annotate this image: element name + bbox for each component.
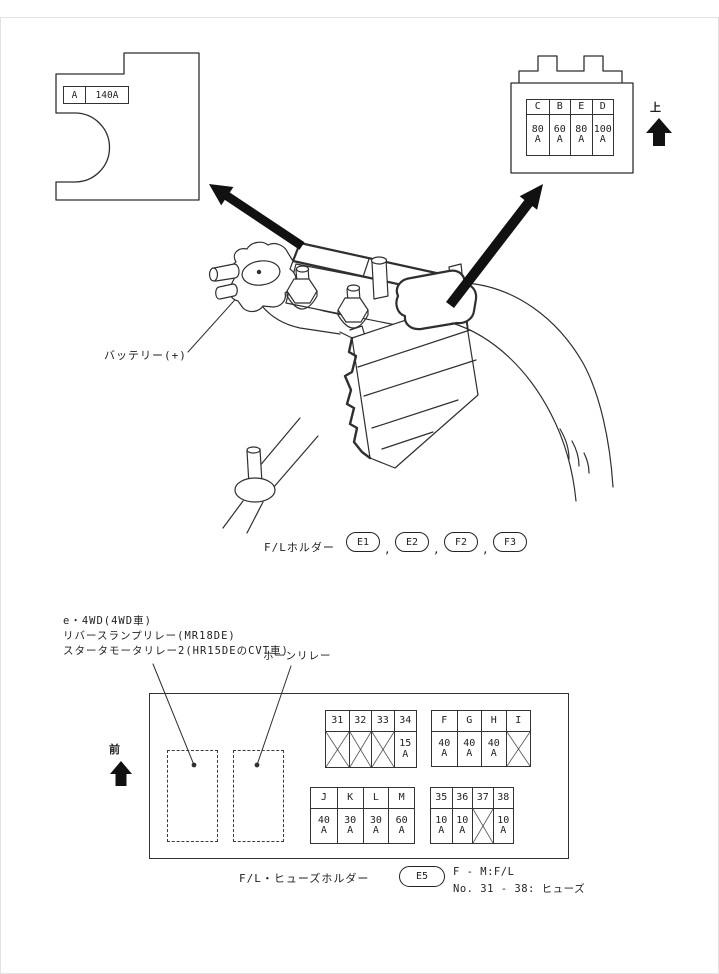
fuse-slot-header: K xyxy=(337,788,363,808)
cable-outer-edge xyxy=(466,283,613,487)
terminal-center-dot xyxy=(257,270,260,273)
fuse-slot-header: 38 xyxy=(493,788,514,808)
up-direction-label: 上 xyxy=(650,99,661,115)
fl-slot-amp: 60 A xyxy=(549,114,571,155)
fuse-slot-blocked xyxy=(506,731,531,766)
fuse-slot-amp: 40 A xyxy=(311,808,337,843)
fuse-slot-header: F xyxy=(432,711,457,731)
fl-table-j-m: J K L M 40 A 30 A 30 A 60 A xyxy=(310,787,415,844)
fuse-slot-amp: 30 A xyxy=(363,808,389,843)
battery-label: バッテリー(+) xyxy=(104,347,187,363)
fuse-slot-amp: 10 A xyxy=(452,808,473,843)
fuse-slot-amp: 15 A xyxy=(394,731,417,767)
ref-separator: , xyxy=(482,543,489,556)
fuse-slot-header: L xyxy=(363,788,389,808)
fuse-slot-blocked xyxy=(472,808,493,843)
fuse-slot-header: M xyxy=(388,788,414,808)
connector-ref-f3: F3 xyxy=(493,532,527,552)
note-fl-range: F - M:F/L xyxy=(453,866,514,878)
arrow-to-topleft-view xyxy=(209,184,305,250)
nut1-stud-top xyxy=(297,266,309,272)
up-direction-arrow xyxy=(646,118,672,146)
fuse-slot-header: 34 xyxy=(394,711,417,731)
nut2-stud-top xyxy=(348,285,360,291)
fuse-slot-header: 31 xyxy=(326,711,349,731)
relay-callout-line1: e・4WD(4WD車) xyxy=(63,613,152,628)
connector-ref-e2: E2 xyxy=(395,532,429,552)
fuse-slot-amp: 40 A xyxy=(481,731,506,766)
fuse-slot-amp: 60 A xyxy=(388,808,414,843)
fl-slot-header: E xyxy=(570,100,592,114)
fuse-slot-header: J xyxy=(311,788,337,808)
fuse-slot-header: 35 xyxy=(431,788,452,808)
fuse-slot-amp: 30 A xyxy=(337,808,363,843)
cable-hatch-marks xyxy=(560,429,589,473)
fuse-slot-header: 33 xyxy=(371,711,394,731)
fl-table-f-i: F G H I 40 A 40 A 40 A xyxy=(431,710,531,767)
fl-slot-header: D xyxy=(592,100,614,114)
fl-holder-detail-outline xyxy=(56,53,199,200)
bolt-tail-lines xyxy=(223,501,263,533)
connector-ref-e1: E1 xyxy=(346,532,380,552)
fl-slot-amp: 80 A xyxy=(527,114,549,155)
connector-ref-e5: E5 xyxy=(399,866,445,887)
fuse-slot-header: H xyxy=(481,711,506,731)
ref-separator: , xyxy=(384,543,391,556)
fuse-slot-amp: 10 A xyxy=(431,808,452,843)
fl-table-cbed: C B E D 80 A 60 A 80 A 100 A xyxy=(526,99,614,156)
fuse-slot-amp: 10 A xyxy=(493,808,514,843)
fuse-slot-header: 36 xyxy=(452,788,473,808)
relay-callout-line2: リバースランプリレー(MR18DE) xyxy=(63,628,236,643)
fl-table-a: A 140A xyxy=(63,86,129,104)
front-direction-label: 前 xyxy=(109,741,120,757)
fuse-slot-blocked xyxy=(349,731,372,767)
relay-callout-line3: スタータモータリレー2(HR15DEのCVT車) xyxy=(63,643,289,658)
relay-slot-dashed xyxy=(167,750,218,842)
front-direction-arrow xyxy=(110,761,132,786)
fuse-slot-header: 32 xyxy=(349,711,372,731)
bolt-flange xyxy=(235,478,275,502)
connector-top-tabs xyxy=(519,56,622,83)
fl-slot-header: C xyxy=(527,100,549,114)
fuse-slot-header: G xyxy=(457,711,482,731)
fuse-holder-label: F/L・ヒューズホルダー xyxy=(239,870,369,886)
fuse-slot-header: I xyxy=(506,711,531,731)
bolt-stud-top xyxy=(247,447,260,453)
fl-slot-id: A xyxy=(64,87,85,103)
fl-slot-rating: 140A xyxy=(85,87,128,103)
ref-separator: , xyxy=(433,543,440,556)
arrow-to-topright-view xyxy=(446,184,543,308)
fuse-slot-amp: 40 A xyxy=(457,731,482,766)
fuse-slot-blocked xyxy=(326,731,349,767)
fl-slot-header: B xyxy=(549,100,571,114)
manual-page: A 140A C B E D 80 A 60 A 80 A 100 A 上 バッ… xyxy=(0,0,719,974)
fl-holder-label: F/Lホルダー xyxy=(264,539,335,555)
fuse-table-35-38: 35 36 37 38 10 A 10 A 10 A xyxy=(430,787,514,844)
connector-ref-f2: F2 xyxy=(444,532,478,552)
stud-cylinder xyxy=(372,259,388,299)
horn-relay-callout: ホーンリレー xyxy=(263,648,331,663)
note-fuse-range: No. 31 - 38: ヒューズ xyxy=(453,881,585,896)
fl-slot-amp: 80 A xyxy=(570,114,592,155)
horn-relay-slot-dashed xyxy=(233,750,284,842)
fuse-slot-blocked xyxy=(371,731,394,767)
fl-slot-amp: 100 A xyxy=(592,114,614,155)
bolt-lead-lines xyxy=(258,418,318,488)
fuse-table-31-34: 31 32 33 34 15 A xyxy=(325,710,417,768)
fuse-slot-header: 37 xyxy=(472,788,493,808)
fuse-slot-amp: 40 A xyxy=(432,731,457,766)
clamp-lug-1-end xyxy=(210,268,218,281)
stud-cylinder-top xyxy=(372,257,387,264)
